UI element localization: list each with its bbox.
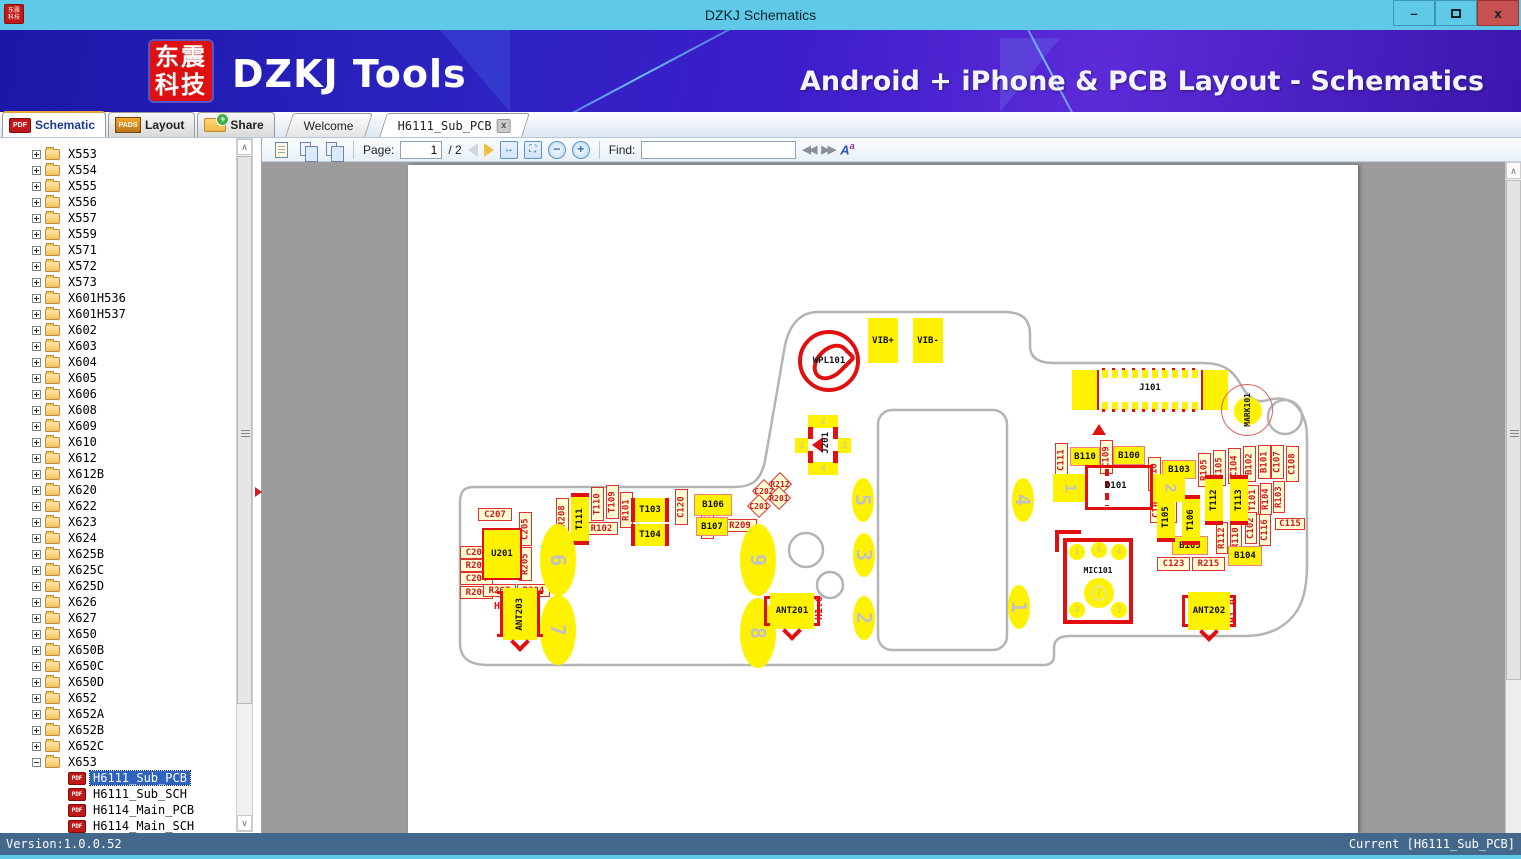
pcb-component-U201: U201 bbox=[482, 528, 522, 580]
tree-scrollbar[interactable]: ∧ ∨ bbox=[236, 138, 253, 832]
pcb-component-J201: 2 1 3 4 J201 bbox=[795, 415, 851, 475]
tree-folder-X573[interactable]: X573 bbox=[0, 274, 236, 290]
expand-icon[interactable] bbox=[32, 182, 41, 191]
tab-schematic[interactable]: PDF Schematic bbox=[2, 111, 106, 137]
previous-page-icon[interactable] bbox=[468, 143, 478, 157]
folder-icon bbox=[45, 709, 60, 720]
tree-folder-X554[interactable]: X554 bbox=[0, 162, 236, 178]
expand-icon[interactable] bbox=[32, 454, 41, 463]
tree-folder-X625C[interactable]: X625C bbox=[0, 562, 236, 578]
expand-icon[interactable] bbox=[32, 710, 41, 719]
pcb-component-R215: R215 bbox=[1192, 557, 1225, 571]
tree-folder-X601H536[interactable]: X601H536 bbox=[0, 290, 236, 306]
expand-icon[interactable] bbox=[32, 262, 41, 271]
tree-folder-X650B[interactable]: X650B bbox=[0, 642, 236, 658]
pcb-component-B110: B110 bbox=[1070, 447, 1100, 466]
pcb-component-B106: B106 bbox=[694, 494, 732, 516]
pcb-pad-9: 9 bbox=[740, 524, 776, 596]
expand-icon[interactable] bbox=[32, 726, 41, 735]
collapse-icon[interactable] bbox=[32, 758, 41, 767]
pcb-component-C207: C207 bbox=[478, 508, 512, 521]
viewer-scrollbar[interactable]: ∧ bbox=[1505, 162, 1521, 833]
folder-icon bbox=[45, 453, 60, 464]
folder-icon bbox=[45, 533, 60, 544]
folder-icon bbox=[45, 645, 60, 656]
pdf-icon: PDF bbox=[68, 820, 86, 833]
expand-icon[interactable] bbox=[32, 342, 41, 351]
page-label: Page: bbox=[363, 143, 394, 157]
tree-folder-X620[interactable]: X620 bbox=[0, 482, 236, 498]
tree-folder-X650[interactable]: X650 bbox=[0, 626, 236, 642]
pcb-drawing: C207C206R203C204R206R207R204R102R209C123… bbox=[408, 165, 1358, 833]
folder-icon bbox=[45, 309, 60, 320]
pcb-component-T109: T109 bbox=[606, 485, 619, 519]
tree-folder-X612[interactable]: X612 bbox=[0, 450, 236, 466]
expand-icon[interactable] bbox=[32, 406, 41, 415]
folder-icon bbox=[45, 341, 60, 352]
viewer-scroll-up-icon[interactable]: ∧ bbox=[1506, 162, 1521, 179]
status-bar: Version:1.0.0.52 Current [H6111_Sub_PCB] bbox=[0, 833, 1521, 855]
tree-folder-X556[interactable]: X556 bbox=[0, 194, 236, 210]
status-version: Version:1.0.0.52 bbox=[6, 837, 122, 851]
page-total: / 2 bbox=[448, 143, 461, 157]
folder-icon bbox=[45, 245, 60, 256]
tree-folder-X623[interactable]: X623 bbox=[0, 514, 236, 530]
tree-folder-X557[interactable]: X557 bbox=[0, 210, 236, 226]
pcb-component-C201: C201 bbox=[745, 497, 773, 515]
folder-icon bbox=[45, 581, 60, 592]
folder-icon bbox=[45, 517, 60, 528]
tab-share[interactable]: Share bbox=[197, 112, 274, 137]
tree-folder-X555[interactable]: X555 bbox=[0, 178, 236, 194]
status-stripe bbox=[0, 855, 1521, 859]
pcb-component-ANT203: ANT203 bbox=[503, 588, 537, 640]
folder-icon bbox=[45, 549, 60, 560]
tree-folder-X650C[interactable]: X650C bbox=[0, 658, 236, 674]
tree-folder-X572[interactable]: X572 bbox=[0, 258, 236, 274]
expand-icon[interactable] bbox=[32, 246, 41, 255]
pcb-component-R112: R112 bbox=[1216, 522, 1228, 554]
folder-icon bbox=[45, 661, 60, 672]
folder-icon bbox=[45, 613, 60, 624]
viewer-scrollbar-thumb[interactable] bbox=[1506, 180, 1521, 680]
expand-icon[interactable] bbox=[32, 358, 41, 367]
tree-folder-X650D[interactable]: X650D bbox=[0, 674, 236, 690]
expand-icon[interactable] bbox=[32, 614, 41, 623]
maximize-icon bbox=[1451, 9, 1461, 18]
maximize-button[interactable] bbox=[1435, 0, 1477, 26]
close-button[interactable]: x bbox=[1477, 0, 1519, 26]
select-pages-button[interactable] bbox=[324, 141, 344, 159]
pcb-component-T103: T103 bbox=[631, 498, 669, 522]
pcb-pad-7: 7 bbox=[540, 595, 576, 665]
folder-icon bbox=[45, 437, 60, 448]
red-triangle-icon bbox=[1092, 424, 1106, 435]
snapshot-button[interactable] bbox=[298, 141, 318, 159]
pcb-component-R102: R102 bbox=[585, 522, 618, 535]
pcb-component-R103: R103 bbox=[1273, 481, 1285, 513]
expand-icon[interactable] bbox=[32, 198, 41, 207]
pcb-component-T110: T110 bbox=[591, 487, 604, 521]
tree-doc-H6111_Sub_PCB[interactable]: PDFH6111_Sub_PCB bbox=[0, 770, 236, 786]
folder-icon bbox=[45, 293, 60, 304]
pcb-component-D101: 1 D101 2 bbox=[1053, 465, 1185, 510]
pcb-component-T101: T101 bbox=[1247, 485, 1259, 515]
expand-icon[interactable] bbox=[32, 502, 41, 511]
title-bar: 东震科技 DZKJ Schematics – x bbox=[0, 0, 1521, 30]
expand-icon[interactable] bbox=[32, 150, 41, 159]
tree-scroll-down-icon[interactable]: ∨ bbox=[237, 815, 252, 831]
pcb-component-T113: T113 bbox=[1230, 475, 1248, 525]
pcb-component-T111: T111 bbox=[571, 493, 589, 545]
tree-folder-X612B[interactable]: X612B bbox=[0, 466, 236, 482]
tab-bar: PDF Schematic PADS Layout Share Welcome … bbox=[0, 112, 1521, 138]
expand-icon[interactable] bbox=[32, 678, 41, 687]
file-tree-panel: X553X554X555X556X557X559X571X572X573X601… bbox=[0, 138, 262, 833]
folder-icon bbox=[45, 469, 60, 480]
expand-icon[interactable] bbox=[32, 326, 41, 335]
expand-icon[interactable] bbox=[32, 374, 41, 383]
tree-folder-X603[interactable]: X603 bbox=[0, 338, 236, 354]
pcb-component-C107: C107 bbox=[1271, 445, 1284, 479]
pdf-icon: PDF bbox=[68, 804, 86, 817]
doc-tab-close-icon[interactable]: x bbox=[496, 119, 510, 133]
pdf-icon: PDF bbox=[68, 772, 86, 785]
folder-icon bbox=[45, 693, 60, 704]
expand-icon[interactable] bbox=[32, 534, 41, 543]
pcb-component-J101: J101 bbox=[1072, 370, 1228, 410]
expand-icon[interactable] bbox=[32, 470, 41, 479]
tree-folder-X652B[interactable]: X652B bbox=[0, 722, 236, 738]
folder-icon bbox=[45, 373, 60, 384]
folder-icon bbox=[45, 197, 60, 208]
find-label: Find: bbox=[609, 143, 636, 157]
viewer-toolbar: Page: / 2 ↔ ⛶ − + Find: ◀◀ ▶▶ Aa bbox=[262, 138, 1521, 162]
expand-icon[interactable] bbox=[32, 662, 41, 671]
pcb-component-ANT202: ANT202 bbox=[1188, 592, 1230, 630]
tree-folder-X571[interactable]: X571 bbox=[0, 242, 236, 258]
tree-folder-X604[interactable]: X604 bbox=[0, 354, 236, 370]
pcb-component-C123: C123 bbox=[1157, 557, 1190, 571]
tree-folder-X652C[interactable]: X652C bbox=[0, 738, 236, 754]
pcb-component-WPL101: WPL101 bbox=[798, 330, 860, 392]
tree-doc-H6114_Main_PCB[interactable]: PDFH6114_Main_PCB bbox=[0, 802, 236, 818]
pcb-component-MIC101: 1 6 4 MIC101 7 2 3 bbox=[1063, 538, 1133, 624]
folder-icon bbox=[45, 181, 60, 192]
expand-icon[interactable] bbox=[32, 422, 41, 431]
tree-folder-X606[interactable]: X606 bbox=[0, 386, 236, 402]
pcb-component-R104: R104 bbox=[1260, 483, 1272, 515]
expand-icon[interactable] bbox=[32, 646, 41, 655]
pdf-page: C207C206R203C204R206R207R204R102R209C123… bbox=[408, 165, 1358, 833]
folder-icon bbox=[45, 229, 60, 240]
pcb-component-C116: C116 bbox=[1259, 514, 1271, 546]
pcb-pad-6: 6 bbox=[540, 524, 576, 596]
tab-layout[interactable]: PADS Layout bbox=[108, 112, 195, 137]
tree-folder-X625D[interactable]: X625D bbox=[0, 578, 236, 594]
app-window: 东震科技 DZKJ Schematics – x 东震科技 DZKJ Tools… bbox=[0, 0, 1521, 859]
expand-icon[interactable] bbox=[32, 742, 41, 751]
folder-icon bbox=[45, 741, 60, 752]
pcb-component-B101: B101 bbox=[1258, 445, 1271, 479]
tree-folder-X602[interactable]: X602 bbox=[0, 322, 236, 338]
folder-icon bbox=[45, 485, 60, 496]
folder-icon bbox=[45, 597, 60, 608]
tree-folder-X652A[interactable]: X652A bbox=[0, 706, 236, 722]
expand-icon[interactable] bbox=[32, 486, 41, 495]
pcb-pad-4: 4 bbox=[1012, 478, 1034, 522]
doc-tab-h6111-sub-pcb[interactable]: H6111_Sub_PCB x bbox=[379, 113, 530, 137]
folder-icon bbox=[45, 277, 60, 288]
tree-folder-X605[interactable]: X605 bbox=[0, 370, 236, 386]
status-current-doc: Current [H6111_Sub_PCB] bbox=[1349, 837, 1515, 851]
pcb-component-MARK101: MARK101 bbox=[1221, 384, 1273, 436]
folder-icon bbox=[45, 677, 60, 688]
pcb-component-T112: T112 bbox=[1205, 475, 1223, 525]
tree-folder-X624[interactable]: X624 bbox=[0, 530, 236, 546]
folder-icon bbox=[45, 405, 60, 416]
doc-tab-welcome[interactable]: Welcome bbox=[285, 113, 373, 137]
folder-icon bbox=[45, 261, 60, 272]
tree-folder-X608[interactable]: X608 bbox=[0, 402, 236, 418]
tree-folder-X553[interactable]: X553 bbox=[0, 146, 236, 162]
pcb-component-ANT201: ANT201 bbox=[770, 593, 814, 629]
pcb-component-VIB-: VIB- bbox=[913, 318, 943, 363]
fit-width-icon[interactable]: ↔ bbox=[500, 141, 518, 159]
folder-icon bbox=[45, 501, 60, 512]
folder-icon bbox=[45, 357, 60, 368]
expand-icon[interactable] bbox=[32, 518, 41, 527]
next-page-icon[interactable] bbox=[484, 143, 494, 157]
pcb-component-T104: T104 bbox=[631, 524, 669, 546]
banner: 东震科技 DZKJ Tools Android + iPhone & PCB L… bbox=[0, 30, 1521, 112]
pcb-component-B100: B100 bbox=[1113, 446, 1145, 465]
folder-icon bbox=[45, 325, 60, 336]
expand-icon[interactable] bbox=[32, 566, 41, 575]
expand-icon[interactable] bbox=[32, 550, 41, 559]
pdf-icon: PDF bbox=[68, 788, 86, 801]
minimize-button[interactable]: – bbox=[1393, 0, 1435, 26]
zoom-out-icon[interactable]: − bbox=[548, 141, 566, 159]
tree-folder-X653[interactable]: X653 bbox=[0, 754, 236, 770]
tree-folder-X622[interactable]: X622 bbox=[0, 498, 236, 514]
tree-scrollbar-thumb[interactable] bbox=[237, 156, 252, 704]
folder-icon bbox=[45, 149, 60, 160]
pcb-pad-2: 2 bbox=[853, 596, 875, 640]
pcb-component-C108: C108 bbox=[1286, 446, 1299, 482]
tree-folder-X610[interactable]: X610 bbox=[0, 434, 236, 450]
find-input[interactable] bbox=[641, 141, 796, 159]
tree-folder-X625B[interactable]: X625B bbox=[0, 546, 236, 562]
expand-icon[interactable] bbox=[32, 166, 41, 175]
pcb-component-VIB+: VIB+ bbox=[868, 318, 898, 363]
tree-folder-X559[interactable]: X559 bbox=[0, 226, 236, 242]
page-number-input[interactable] bbox=[400, 141, 442, 159]
expand-icon[interactable] bbox=[32, 582, 41, 591]
tree-folder-X626[interactable]: X626 bbox=[0, 594, 236, 610]
pcb-pad-3: 3 bbox=[853, 533, 875, 577]
tree-scroll-up-icon[interactable]: ∧ bbox=[237, 139, 252, 155]
match-case-icon[interactable]: Aa bbox=[840, 141, 854, 157]
pcb-pad-5: 5 bbox=[852, 478, 874, 522]
expand-icon[interactable] bbox=[32, 214, 41, 223]
folder-icon bbox=[45, 165, 60, 176]
folder-icon bbox=[45, 389, 60, 400]
banner-tagline: Android + iPhone & PCB Layout - Schemati… bbox=[800, 66, 1484, 97]
folder-icon bbox=[45, 757, 60, 768]
tree-folder-X609[interactable]: X609 bbox=[0, 418, 236, 434]
window-title: DZKJ Schematics bbox=[0, 7, 1521, 23]
pcb-component-C115: C115 bbox=[1275, 518, 1305, 530]
find-previous-icon[interactable]: ◀◀ bbox=[802, 143, 815, 156]
pcb-component-C120: C120 bbox=[675, 489, 688, 525]
folder-icon bbox=[45, 565, 60, 576]
tree-folder-X601H537[interactable]: X601H537 bbox=[0, 306, 236, 322]
tree-folder-X652[interactable]: X652 bbox=[0, 690, 236, 706]
expand-icon[interactable] bbox=[32, 278, 41, 287]
folder-icon bbox=[45, 421, 60, 432]
expand-icon[interactable] bbox=[32, 598, 41, 607]
expand-icon[interactable] bbox=[32, 310, 41, 319]
expand-icon[interactable] bbox=[32, 230, 41, 239]
share-folder-icon bbox=[204, 118, 226, 132]
copy-text-button[interactable] bbox=[272, 141, 292, 159]
file-tree: X553X554X555X556X557X559X571X572X573X601… bbox=[0, 146, 236, 833]
find-next-icon[interactable]: ▶▶ bbox=[821, 143, 834, 156]
expand-icon[interactable] bbox=[32, 390, 41, 399]
zoom-in-icon[interactable]: + bbox=[572, 141, 590, 159]
brand-name: DZKJ Tools bbox=[232, 52, 467, 96]
pdf-icon: PDF bbox=[9, 118, 31, 133]
expand-icon[interactable] bbox=[32, 294, 41, 303]
folder-icon bbox=[45, 725, 60, 736]
tree-folder-X627[interactable]: X627 bbox=[0, 610, 236, 626]
folder-icon bbox=[45, 629, 60, 640]
tree-doc-H6114_Main_SCH[interactable]: PDFH6114_Main_SCH bbox=[0, 818, 236, 833]
folder-icon bbox=[45, 213, 60, 224]
fit-page-icon[interactable]: ⛶ bbox=[524, 141, 542, 159]
tree-doc-H6111_Sub_SCH[interactable]: PDFH6111_Sub_SCH bbox=[0, 786, 236, 802]
expand-icon[interactable] bbox=[32, 438, 41, 447]
expand-icon[interactable] bbox=[32, 630, 41, 639]
brand-logo: 东震科技 bbox=[150, 41, 212, 101]
pcb-component-B107: B107 bbox=[696, 517, 728, 536]
pcb-component-B104: B104 bbox=[1228, 546, 1262, 566]
expand-icon[interactable] bbox=[32, 694, 41, 703]
document-area: C207C206R203C204R206R207R204R102R209C123… bbox=[262, 162, 1505, 833]
pcb-pad-1: 1 bbox=[1008, 585, 1030, 629]
pads-icon: PADS bbox=[115, 117, 141, 133]
